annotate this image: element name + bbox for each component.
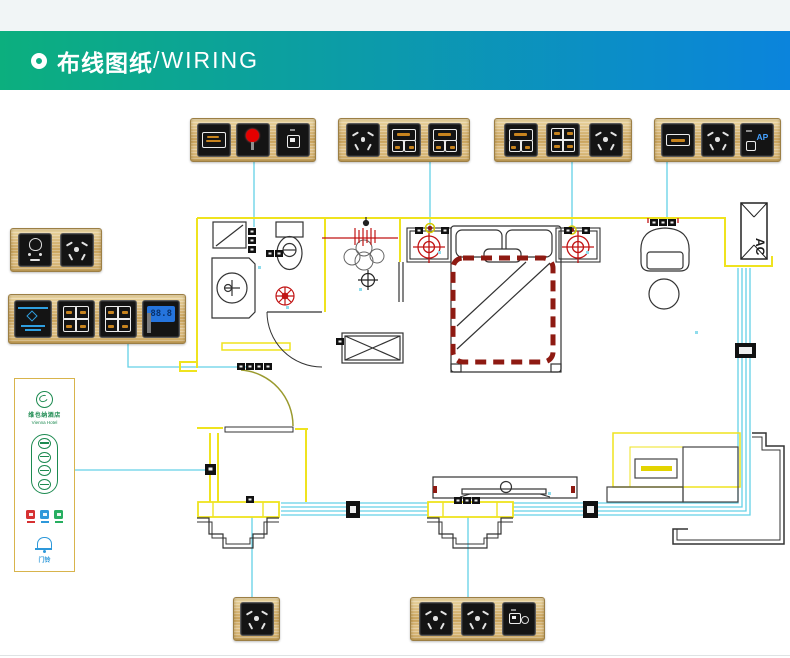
vanity-basin <box>212 258 255 318</box>
panel-top-2 <box>338 118 470 162</box>
bed <box>451 226 561 372</box>
hotel-name-en: Vienna Hotel <box>32 420 58 425</box>
switch-4gang-module <box>546 123 580 157</box>
panel-left-1 <box>10 228 102 272</box>
five-hole-socket-module <box>346 123 380 157</box>
bathroom-door <box>267 312 322 367</box>
mirror <box>213 222 246 248</box>
tv-network-jack-module <box>502 602 536 636</box>
ceiling-light <box>358 270 378 290</box>
doorbell-indicator: 门铃 <box>37 537 52 564</box>
panel-logo-bell: 维也纳酒店 Vienna Hotel 门铃 <box>14 378 75 572</box>
please-clean-icon <box>40 510 49 519</box>
window-bay-middle <box>428 502 513 517</box>
five-hole-socket-module <box>240 602 274 636</box>
window-bay-left <box>198 502 279 517</box>
bell-icon <box>37 537 52 549</box>
switch-2gang-module <box>504 123 538 157</box>
wardrobe <box>683 447 738 502</box>
panel-top-4: AP <box>654 118 781 162</box>
shower-spray <box>322 228 398 246</box>
wall-light-left <box>413 231 445 263</box>
ac-unit: AC <box>741 203 767 259</box>
doorbell-unit-module <box>276 123 310 157</box>
thermostat-module: 88.8 <box>142 300 180 338</box>
five-hole-socket-module <box>701 123 735 157</box>
five-hole-socket-module <box>461 602 495 636</box>
switch-2gang-module <box>387 123 421 157</box>
ac-label: AC <box>753 238 767 256</box>
room-number-display-module <box>197 123 231 157</box>
switch-4gang-module <box>57 300 95 338</box>
do-not-disturb-icon <box>26 510 35 519</box>
label-display-module <box>661 123 695 157</box>
logo-capsule-icon <box>31 434 58 494</box>
status-icons <box>26 510 63 519</box>
desk-label-text-bar <box>641 466 672 471</box>
panel-bottom-1 <box>233 597 280 641</box>
switch-4gang-module <box>99 300 137 338</box>
tv-mark-right <box>571 486 575 493</box>
panel-top-1 <box>190 118 316 162</box>
tv-console <box>433 477 577 498</box>
ap-label: AP <box>756 132 768 142</box>
shower-cloud <box>344 240 384 270</box>
bathroom <box>212 217 403 367</box>
keycard-power-module <box>14 300 52 338</box>
wardrobe-desk <box>607 447 738 502</box>
five-hole-socket-module <box>60 233 94 267</box>
panel-left-2: 88.8 <box>8 294 186 344</box>
doorbell-label: 门铃 <box>38 555 50 564</box>
five-hole-socket-module <box>589 123 623 157</box>
doorbell-red-button-module <box>236 123 270 157</box>
eco-icon <box>54 510 63 519</box>
panel-top-3 <box>494 118 632 162</box>
hotel-logo-icon <box>36 391 53 408</box>
shower-glass <box>399 262 403 302</box>
outer-wall-corner <box>673 433 784 544</box>
exhaust-fan <box>276 287 294 305</box>
shaver-socket-module <box>18 233 52 267</box>
side-table <box>649 279 679 309</box>
desk <box>607 487 683 502</box>
hotel-name-zh: 维也纳酒店 <box>28 410 61 419</box>
wall-light-right <box>562 231 594 263</box>
armchair <box>641 228 689 271</box>
wifi-ap-module: AP <box>740 123 774 157</box>
wiring-lines <box>74 162 750 597</box>
five-hole-socket-module <box>419 602 453 636</box>
panel-bottom-2 <box>410 597 545 641</box>
wiring-diagram-page: { "header": { "title_zh": "布线图纸", "title… <box>0 0 790 658</box>
entry-door <box>225 370 293 432</box>
toilet <box>276 222 303 270</box>
tv-mark-left <box>433 486 437 493</box>
shower-tray <box>342 333 403 363</box>
switch-2gang-module <box>428 123 462 157</box>
